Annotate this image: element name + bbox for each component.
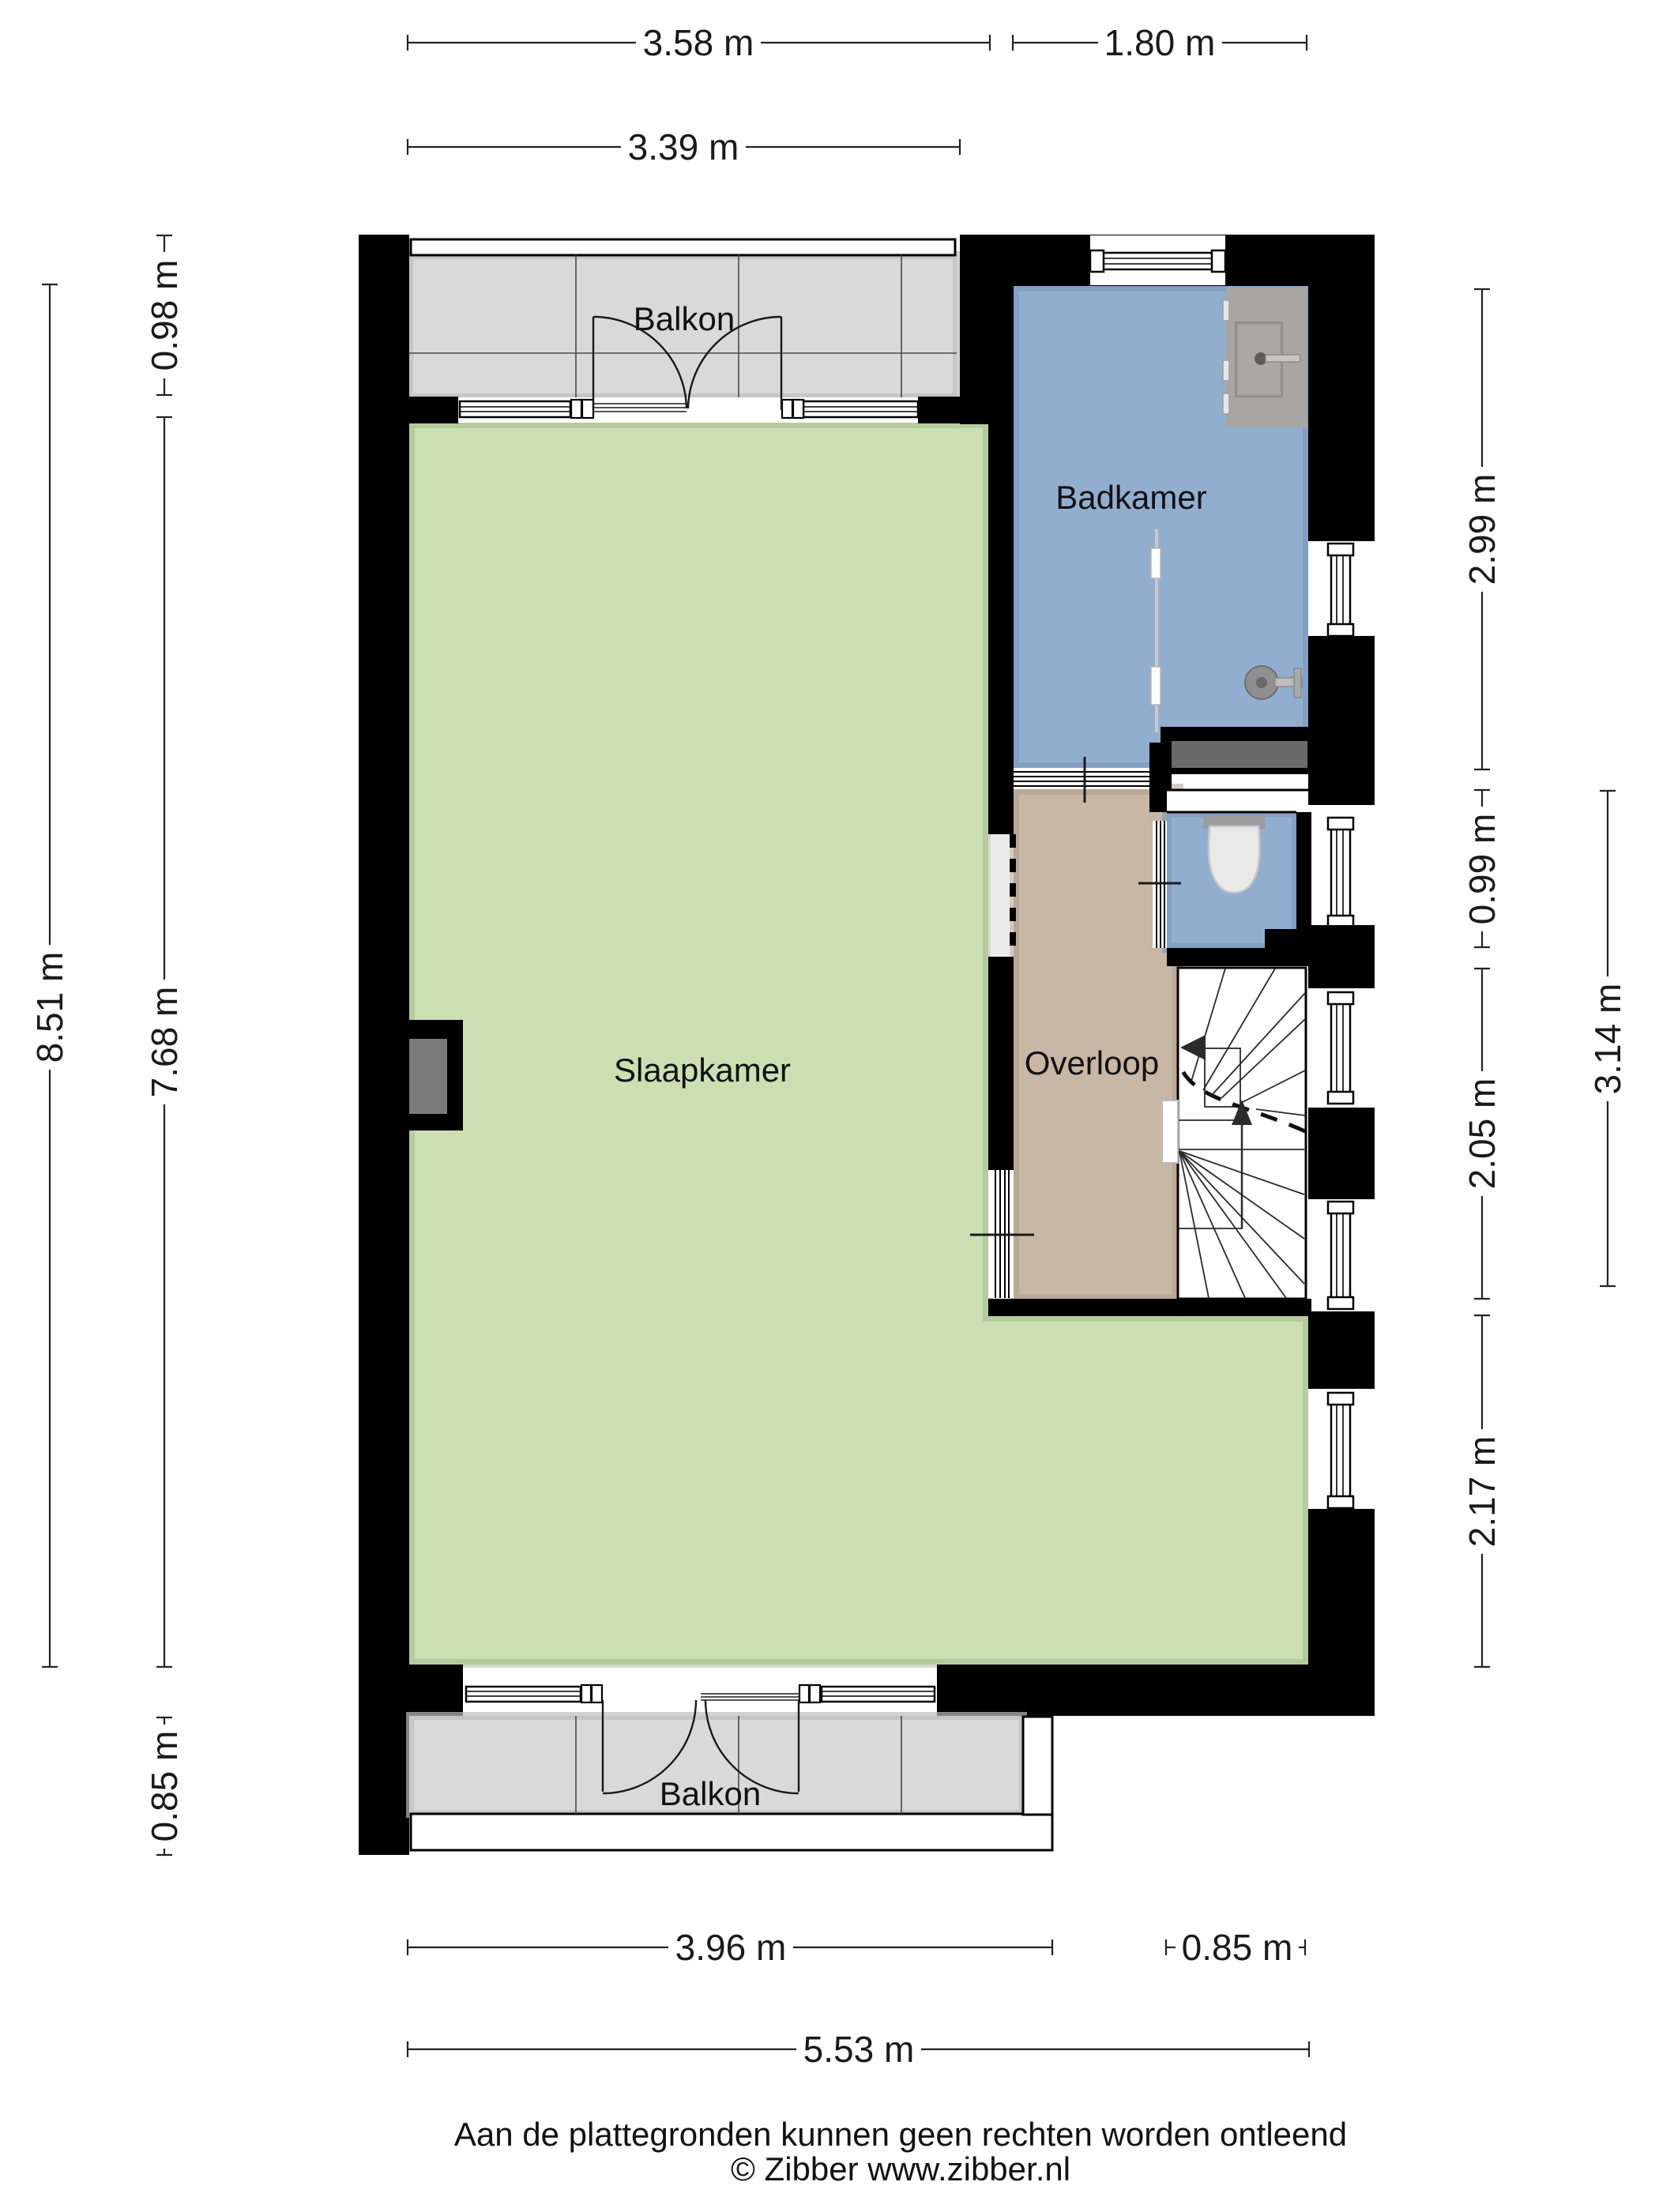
svg-text:Slaapkamer: Slaapkamer (614, 1051, 791, 1089)
svg-text:8.51 m: 8.51 m (29, 952, 70, 1063)
svg-text:5.53 m: 5.53 m (803, 2029, 915, 2070)
svg-text:3.14 m: 3.14 m (1587, 984, 1628, 1095)
svg-text:Balkon: Balkon (660, 1775, 761, 1812)
svg-text:2.17 m: 2.17 m (1461, 1436, 1503, 1548)
svg-text:0.98 m: 0.98 m (144, 260, 185, 371)
svg-text:0.85 m: 0.85 m (144, 1731, 185, 1842)
svg-text:© Zibber www.zibber.nl: © Zibber www.zibber.nl (731, 2150, 1070, 2188)
svg-text:0.85 m: 0.85 m (1182, 1927, 1293, 1968)
svg-text:3.96 m: 3.96 m (675, 1927, 787, 1968)
svg-text:Overloop: Overloop (1025, 1044, 1159, 1082)
svg-text:2.05 m: 2.05 m (1461, 1078, 1503, 1190)
svg-text:Balkon: Balkon (634, 300, 735, 337)
svg-text:3.58 m: 3.58 m (643, 22, 754, 63)
svg-text:3.39 m: 3.39 m (628, 126, 739, 167)
svg-text:2.99 m: 2.99 m (1461, 474, 1503, 585)
svg-text:Badkamer: Badkamer (1055, 479, 1206, 516)
svg-text:1.80 m: 1.80 m (1104, 22, 1216, 63)
svg-text:Aan de plattegronden kunnen ge: Aan de plattegronden kunnen geen rechten… (454, 2116, 1347, 2153)
svg-text:0.99 m: 0.99 m (1461, 814, 1503, 925)
svg-text:7.68 m: 7.68 m (144, 987, 185, 1098)
